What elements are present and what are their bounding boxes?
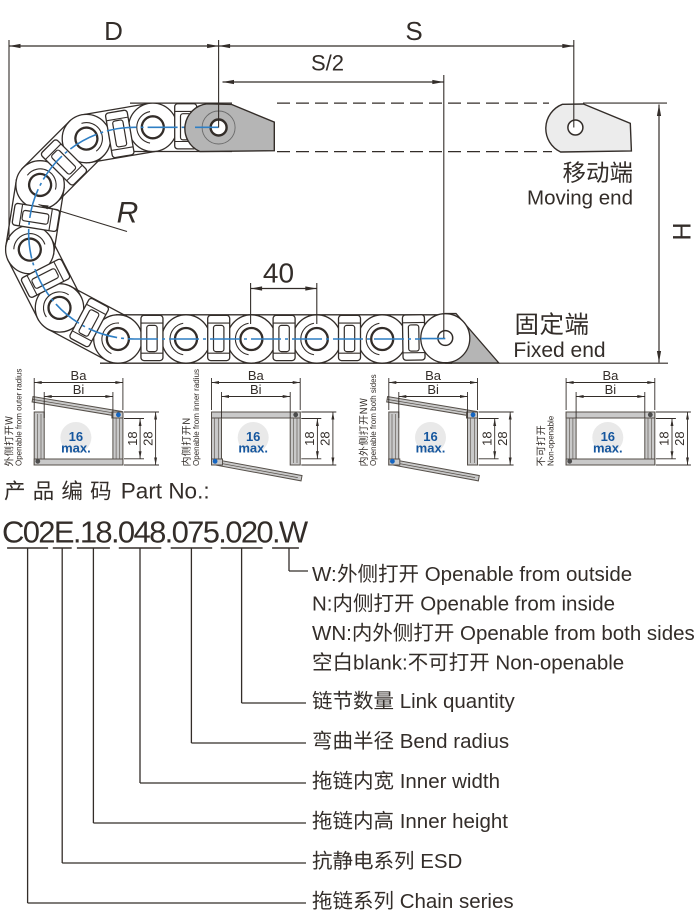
svg-text:max.: max.	[238, 441, 268, 456]
svg-text:Ba: Ba	[71, 368, 88, 383]
svg-text:28: 28	[140, 431, 155, 445]
svg-text:Bend radius: Bend radius	[394, 730, 509, 753]
svg-text:W:: W:	[312, 563, 337, 586]
svg-text:18: 18	[125, 431, 140, 445]
svg-text:S: S	[405, 16, 422, 46]
svg-text:28: 28	[495, 431, 510, 445]
svg-text:max.: max.	[593, 441, 623, 456]
svg-text:18: 18	[302, 431, 317, 445]
svg-text:Moving end: Moving end	[527, 187, 633, 210]
svg-text:Fixed end: Fixed end	[513, 339, 605, 362]
svg-text:H: H	[669, 222, 697, 240]
svg-text:Openable from inside: Openable from inside	[415, 593, 616, 616]
svg-text:Openable from outside: Openable from outside	[419, 563, 632, 586]
svg-text:Inner width: Inner width	[394, 770, 500, 793]
svg-text:R: R	[117, 197, 139, 230]
svg-text:Chain series: Chain series	[394, 890, 514, 913]
svg-text:40: 40	[263, 258, 294, 289]
svg-text:Bi: Bi	[605, 382, 617, 397]
svg-text:max.: max.	[416, 441, 446, 456]
svg-text:18: 18	[479, 431, 494, 445]
svg-text:Non-openable: Non-openable	[546, 415, 555, 466]
svg-text:D: D	[104, 16, 123, 46]
svg-text:S/2: S/2	[311, 51, 344, 76]
svg-text:Openable from both sides: Openable from both sides	[369, 374, 378, 466]
svg-text:18: 18	[657, 431, 672, 445]
svg-text:Bi: Bi	[250, 382, 262, 397]
svg-text:28: 28	[318, 431, 333, 445]
svg-text:28: 28	[672, 431, 687, 445]
svg-text:Non-openable: Non-openable	[490, 652, 625, 675]
svg-text:Part No.:: Part No.:	[121, 479, 210, 504]
svg-text:C02E.18.048.075.020.W: C02E.18.048.075.020.W	[2, 515, 309, 550]
svg-text:WN:: WN:	[312, 622, 352, 645]
svg-text:Ba: Ba	[425, 368, 442, 383]
svg-text:Openable from outer radius: Openable from outer radius	[15, 369, 24, 466]
svg-text:Link quantity: Link quantity	[394, 690, 516, 713]
svg-text:Bi: Bi	[427, 382, 439, 397]
svg-text:Openable from both sides: Openable from both sides	[454, 622, 694, 645]
svg-text:Openable from inner radius: Openable from inner radius	[192, 369, 201, 466]
svg-text:ESD: ESD	[415, 850, 463, 873]
svg-text:blank:: blank:	[353, 652, 408, 675]
svg-text:Ba: Ba	[602, 368, 619, 383]
svg-text:Ba: Ba	[248, 368, 265, 383]
svg-text:Bi: Bi	[73, 382, 85, 397]
svg-text:max.: max.	[61, 441, 91, 456]
svg-text:N:: N:	[312, 593, 333, 616]
svg-text:Inner height: Inner height	[394, 810, 508, 833]
